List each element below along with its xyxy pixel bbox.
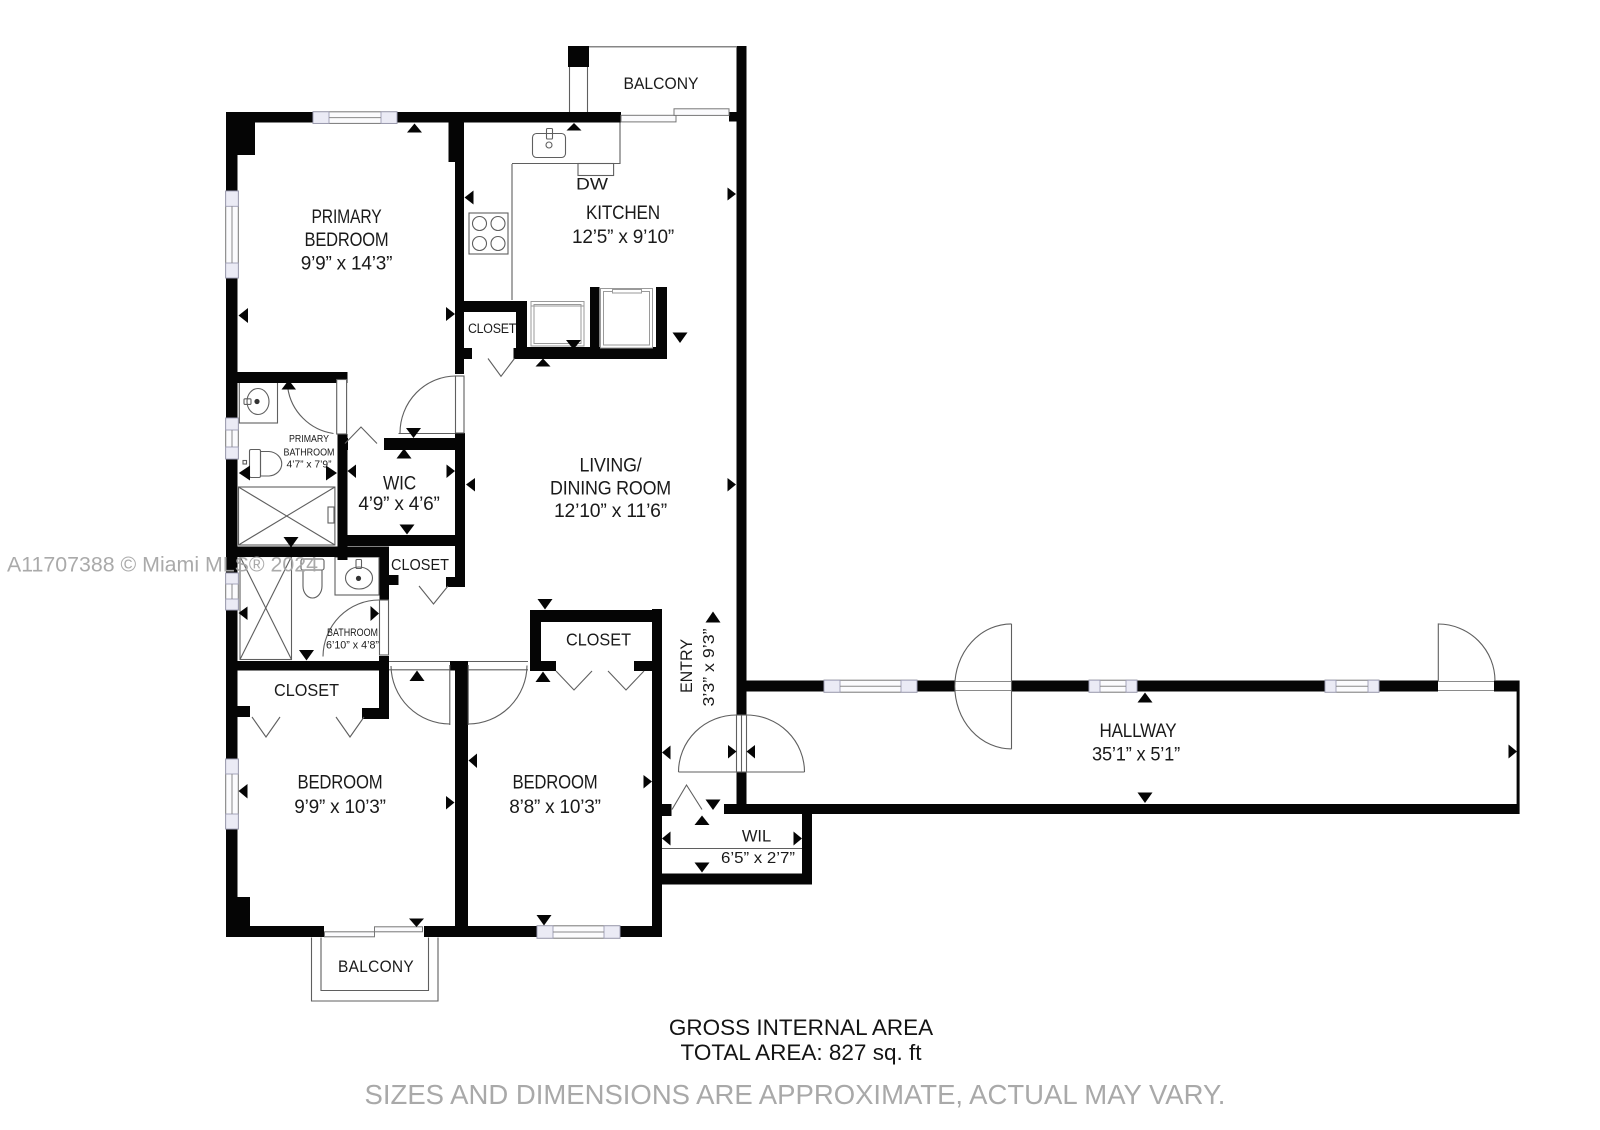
svg-text:6’10” x 4’8”: 6’10” x 4’8” <box>326 640 379 652</box>
svg-text:BEDROOM: BEDROOM <box>298 773 383 794</box>
svg-text:3’3” x 9’3”: 3’3” x 9’3” <box>701 629 718 707</box>
svg-text:KITCHEN: KITCHEN <box>586 203 660 224</box>
svg-text:WIC: WIC <box>383 474 416 495</box>
svg-text:GROSS INTERNAL AREA: GROSS INTERNAL AREA <box>669 1015 933 1040</box>
svg-text:9’9” x 14’3”: 9’9” x 14’3” <box>301 254 393 275</box>
svg-text:12’5” x 9’10”: 12’5” x 9’10” <box>572 227 674 248</box>
svg-text:CLOSET: CLOSET <box>468 321 516 336</box>
svg-text:BATHROOM: BATHROOM <box>284 447 335 459</box>
svg-text:LIVING/: LIVING/ <box>580 456 643 477</box>
svg-text:A11707388 © Miami MLS® 2024: A11707388 © Miami MLS® 2024 <box>7 554 318 577</box>
svg-text:CLOSET: CLOSET <box>566 630 631 650</box>
svg-text:4’9” x 4’6”: 4’9” x 4’6” <box>358 494 439 515</box>
svg-text:CLOSET: CLOSET <box>274 680 339 700</box>
svg-text:DW: DW <box>576 175 608 194</box>
svg-text:BEDROOM: BEDROOM <box>305 230 389 251</box>
svg-text:8’8” x 10’3”: 8’8” x 10’3” <box>509 797 601 818</box>
svg-text:9’9” x 10’3”: 9’9” x 10’3” <box>294 797 386 818</box>
svg-text:BATHROOM: BATHROOM <box>327 627 378 639</box>
svg-text:PRIMARY: PRIMARY <box>289 433 329 445</box>
svg-text:12’10” x 11’6”: 12’10” x 11’6” <box>554 501 667 522</box>
svg-text:CLOSET: CLOSET <box>391 557 449 574</box>
svg-text:WIL: WIL <box>742 828 771 846</box>
svg-text:DINING ROOM: DINING ROOM <box>550 479 671 500</box>
svg-text:BALCONY: BALCONY <box>338 958 414 976</box>
svg-text:BALCONY: BALCONY <box>624 75 699 93</box>
svg-text:BEDROOM: BEDROOM <box>513 773 598 794</box>
svg-text:HALLWAY: HALLWAY <box>1100 721 1177 742</box>
svg-text:6’5” x 2’7”: 6’5” x 2’7” <box>721 850 795 867</box>
svg-text:SIZES AND DIMENSIONS ARE APPRO: SIZES AND DIMENSIONS ARE APPROXIMATE, AC… <box>365 1079 1226 1110</box>
svg-text:TOTAL AREA: 827 sq. ft: TOTAL AREA: 827 sq. ft <box>681 1040 923 1065</box>
svg-text:35’1” x 5’1”: 35’1” x 5’1” <box>1092 745 1180 766</box>
svg-text:4’7” x 7’9”: 4’7” x 7’9” <box>287 459 332 471</box>
svg-text:PRIMARY: PRIMARY <box>312 207 382 228</box>
svg-text:ENTRY: ENTRY <box>677 639 696 693</box>
